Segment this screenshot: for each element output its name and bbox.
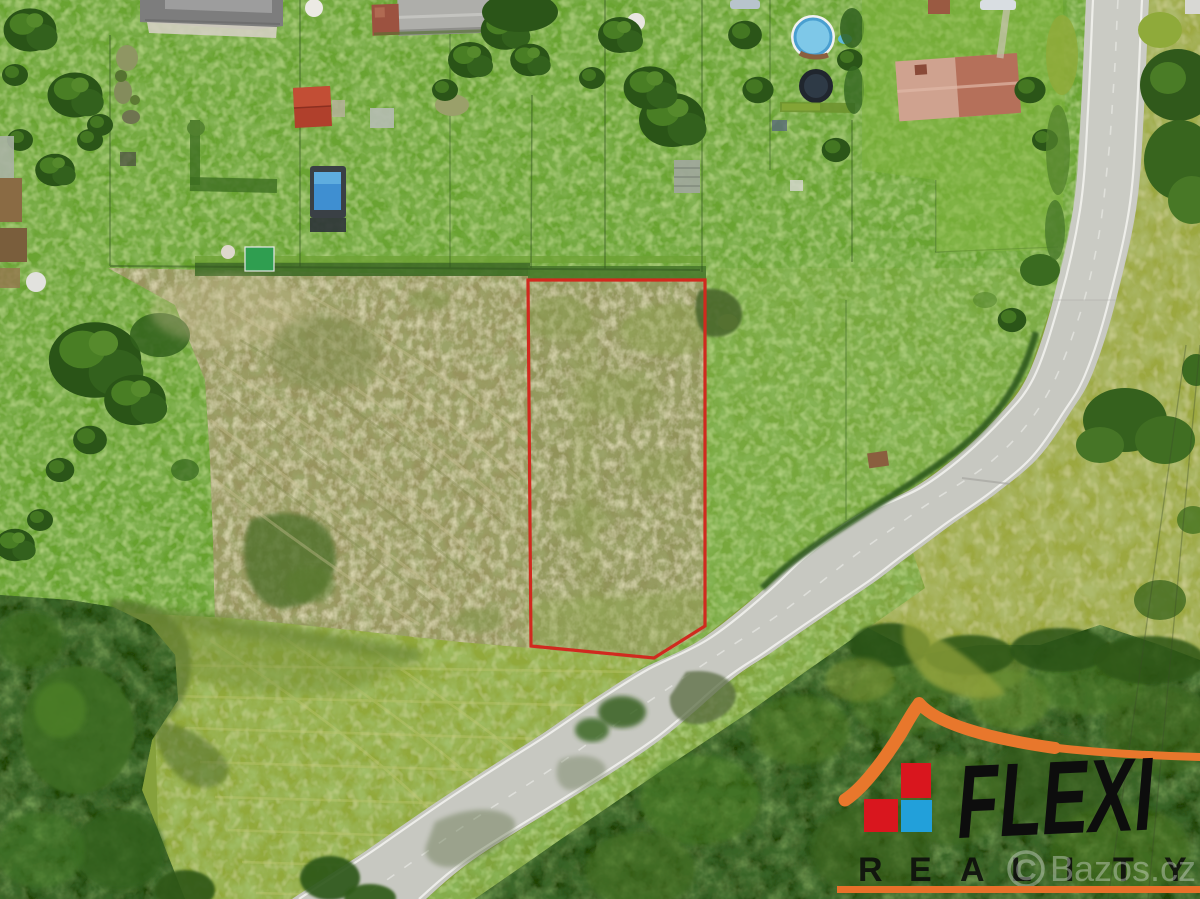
svg-text:Bazos.cz: Bazos.cz [1050,848,1196,889]
svg-text:C: C [1015,854,1037,887]
svg-text:FLEXI: FLEXI [954,736,1157,861]
